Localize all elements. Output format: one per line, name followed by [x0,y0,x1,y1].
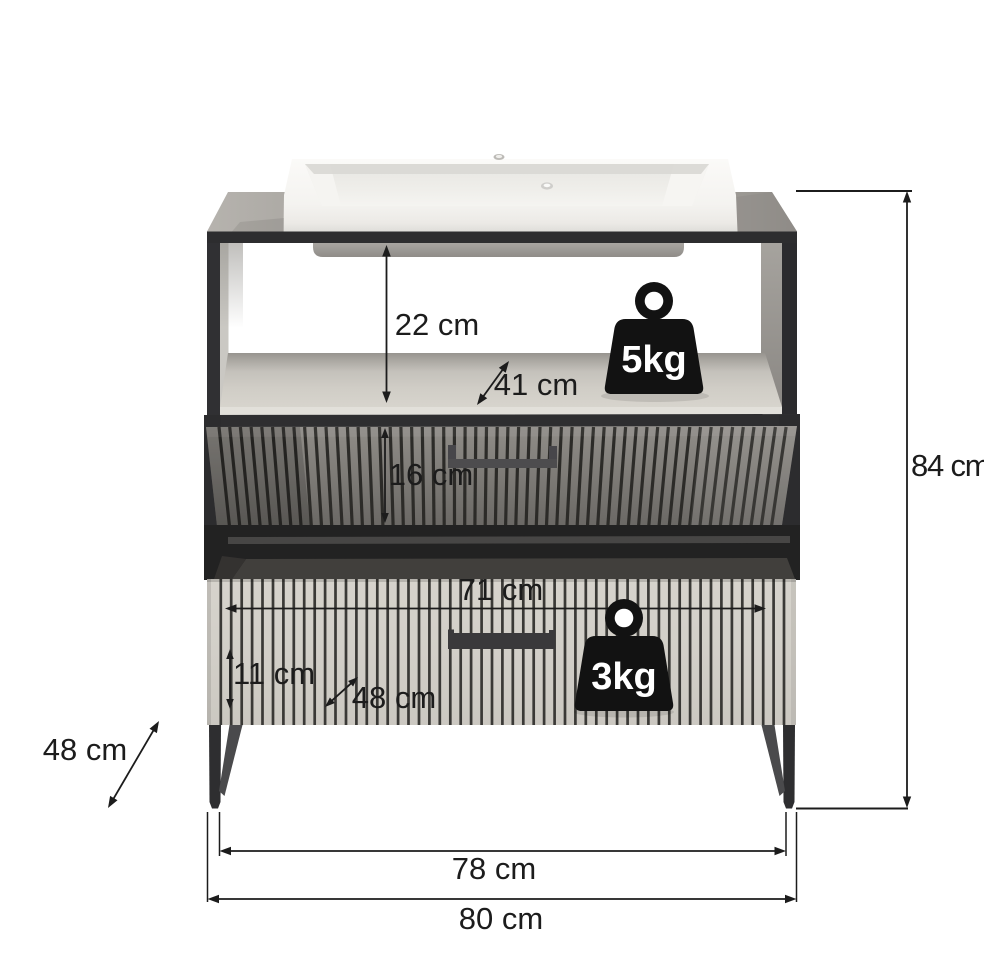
svg-text:41 cm: 41 cm [494,367,578,402]
svg-text:3kg: 3kg [591,656,656,698]
svg-text:84 cm: 84 cm [911,448,984,483]
svg-text:48 cm: 48 cm [43,732,127,767]
svg-text:48 cm: 48 cm [352,680,436,715]
svg-text:78 cm: 78 cm [452,851,536,886]
svg-text:16 cm: 16 cm [389,457,473,492]
svg-text:5kg: 5kg [621,339,686,381]
svg-text:80 cm: 80 cm [459,901,543,936]
svg-text:11 cm: 11 cm [233,656,315,691]
svg-text:71 cm: 71 cm [459,572,543,607]
svg-text:22 cm: 22 cm [395,307,479,342]
